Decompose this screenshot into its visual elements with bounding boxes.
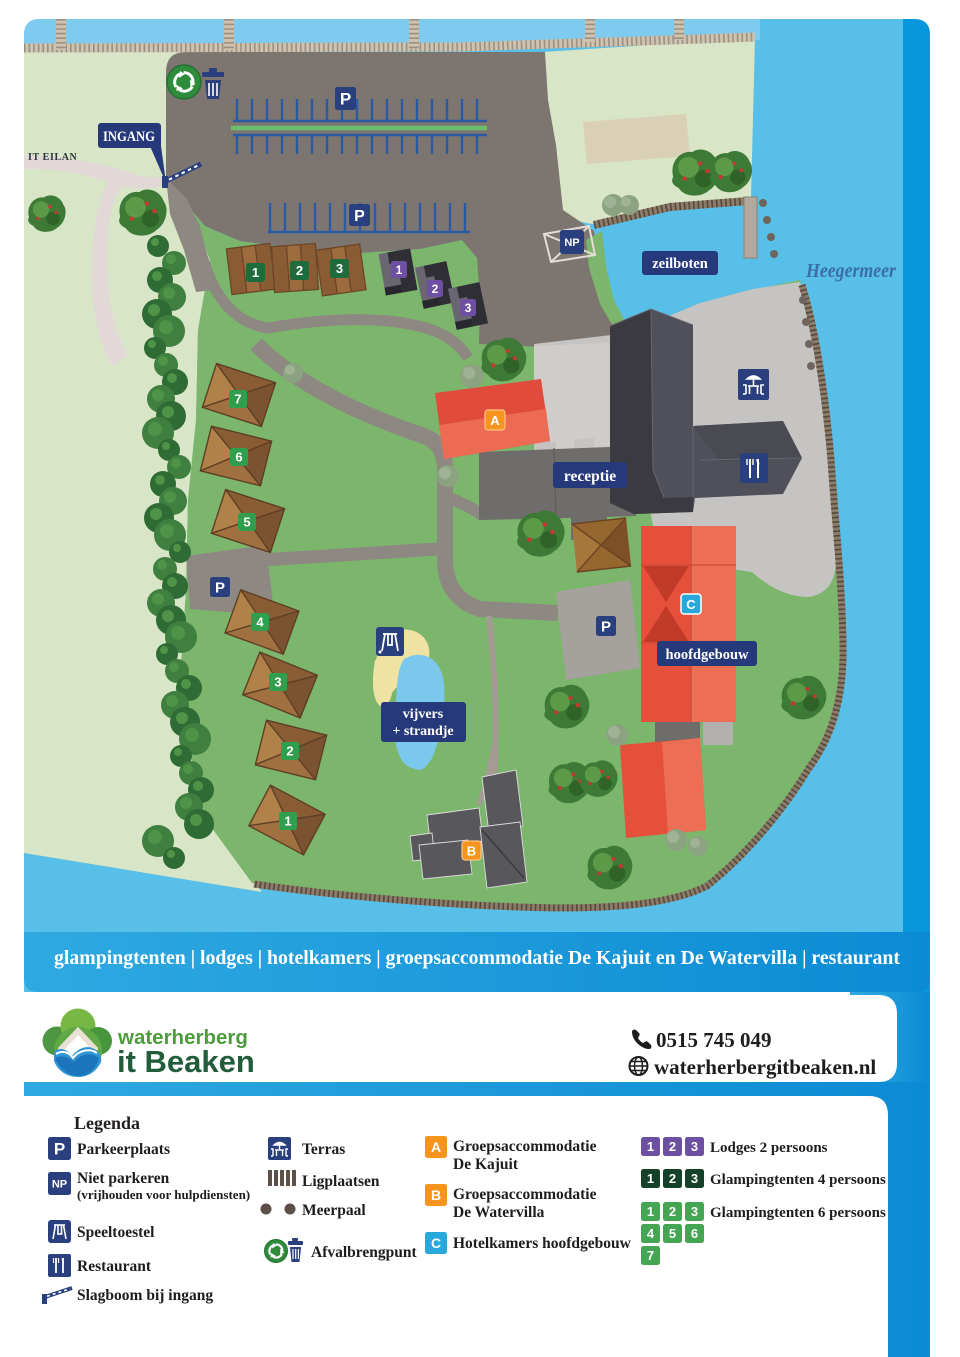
svg-text:2: 2 — [669, 1204, 676, 1219]
svg-text:B: B — [467, 844, 476, 859]
svg-text:Terras: Terras — [302, 1141, 345, 1158]
svg-text:2: 2 — [296, 263, 303, 278]
svg-text:2: 2 — [432, 282, 439, 296]
svg-text:Restaurant: Restaurant — [77, 1258, 152, 1275]
svg-text:Hotelkamers hoofdgebouw: Hotelkamers hoofdgebouw — [453, 1235, 632, 1252]
svg-text:+ strandje: + strandje — [392, 724, 453, 739]
svg-text:7: 7 — [234, 392, 241, 407]
svg-text:NP: NP — [52, 1179, 67, 1191]
svg-text:vijvers: vijvers — [403, 707, 444, 722]
svg-text:6: 6 — [691, 1226, 698, 1241]
svg-text:(vrijhouden voor hulpdiensten): (vrijhouden voor hulpdiensten) — [77, 1187, 250, 1202]
svg-text:3: 3 — [465, 301, 472, 315]
svg-text:4: 4 — [256, 615, 264, 630]
svg-text:waterherbergitbeaken.nl: waterherbergitbeaken.nl — [654, 1055, 876, 1079]
svg-text:1: 1 — [284, 814, 291, 829]
svg-text:De Watervilla: De Watervilla — [453, 1204, 545, 1221]
svg-text:Meerpaal: Meerpaal — [302, 1202, 366, 1219]
svg-text:Lodges 2 persoons: Lodges 2 persoons — [710, 1140, 828, 1156]
svg-text:Niet parkeren: Niet parkeren — [77, 1170, 170, 1187]
svg-text:2: 2 — [286, 744, 293, 759]
svg-text:A: A — [431, 1139, 441, 1155]
svg-text:INGANG: INGANG — [103, 129, 155, 145]
svg-text:1: 1 — [647, 1204, 654, 1219]
svg-text:Ligplaatsen: Ligplaatsen — [302, 1173, 380, 1190]
svg-text:1: 1 — [396, 263, 403, 277]
svg-text:1: 1 — [647, 1171, 654, 1186]
svg-text:B: B — [431, 1187, 441, 1203]
svg-text:C: C — [431, 1235, 441, 1251]
svg-text:it Beaken: it Beaken — [117, 1044, 255, 1079]
svg-text:Groepsaccommodatie: Groepsaccommodatie — [453, 1186, 597, 1203]
svg-text:3: 3 — [274, 675, 281, 690]
svg-text:zeilboten: zeilboten — [652, 256, 708, 272]
svg-text:Glampingtenten 6 persoons: Glampingtenten 6 persoons — [710, 1205, 886, 1221]
svg-text:Parkeerplaats: Parkeerplaats — [77, 1141, 170, 1158]
svg-text:P: P — [340, 90, 351, 109]
svg-text:P: P — [215, 579, 225, 596]
svg-text:glampingtenten | lodges | hote: glampingtenten | lodges | hotelkamers | … — [54, 947, 900, 969]
svg-text:A: A — [490, 413, 500, 428]
svg-text:3: 3 — [691, 1139, 698, 1154]
svg-text:receptie: receptie — [564, 468, 616, 485]
svg-text:2: 2 — [669, 1139, 676, 1154]
svg-text:C: C — [686, 597, 696, 612]
svg-text:2: 2 — [669, 1171, 676, 1186]
svg-text:Legenda: Legenda — [74, 1113, 140, 1133]
svg-text:Groepsaccommodatie: Groepsaccommodatie — [453, 1138, 597, 1155]
svg-text:3: 3 — [691, 1204, 698, 1219]
svg-text:Speeltoestel: Speeltoestel — [77, 1224, 155, 1241]
svg-text:6: 6 — [235, 450, 242, 465]
svg-text:IT EILAN: IT EILAN — [28, 152, 78, 163]
svg-text:3: 3 — [691, 1171, 698, 1186]
svg-text:Heegermeer: Heegermeer — [805, 260, 896, 282]
svg-text:P: P — [601, 618, 611, 635]
svg-text:Glampingtenten 4 persoons: Glampingtenten 4 persoons — [710, 1172, 886, 1188]
svg-text:4: 4 — [647, 1226, 655, 1241]
svg-text:P: P — [54, 1140, 65, 1159]
svg-text:1: 1 — [647, 1139, 654, 1154]
svg-text:hoofdgebouw: hoofdgebouw — [666, 647, 750, 663]
svg-text:5: 5 — [669, 1226, 676, 1241]
svg-text:P: P — [354, 208, 365, 225]
svg-text:1: 1 — [252, 265, 259, 280]
svg-text:De Kajuit: De Kajuit — [453, 1156, 519, 1173]
svg-text:5: 5 — [243, 515, 250, 530]
svg-text:Afvalbrengpunt: Afvalbrengpunt — [311, 1244, 417, 1261]
svg-text:3: 3 — [336, 261, 343, 276]
svg-text:0515 745 049: 0515 745 049 — [656, 1028, 772, 1052]
svg-text:7: 7 — [647, 1248, 654, 1263]
svg-text:NP: NP — [564, 237, 579, 249]
svg-text:Slagboom bij ingang: Slagboom bij ingang — [77, 1287, 213, 1304]
